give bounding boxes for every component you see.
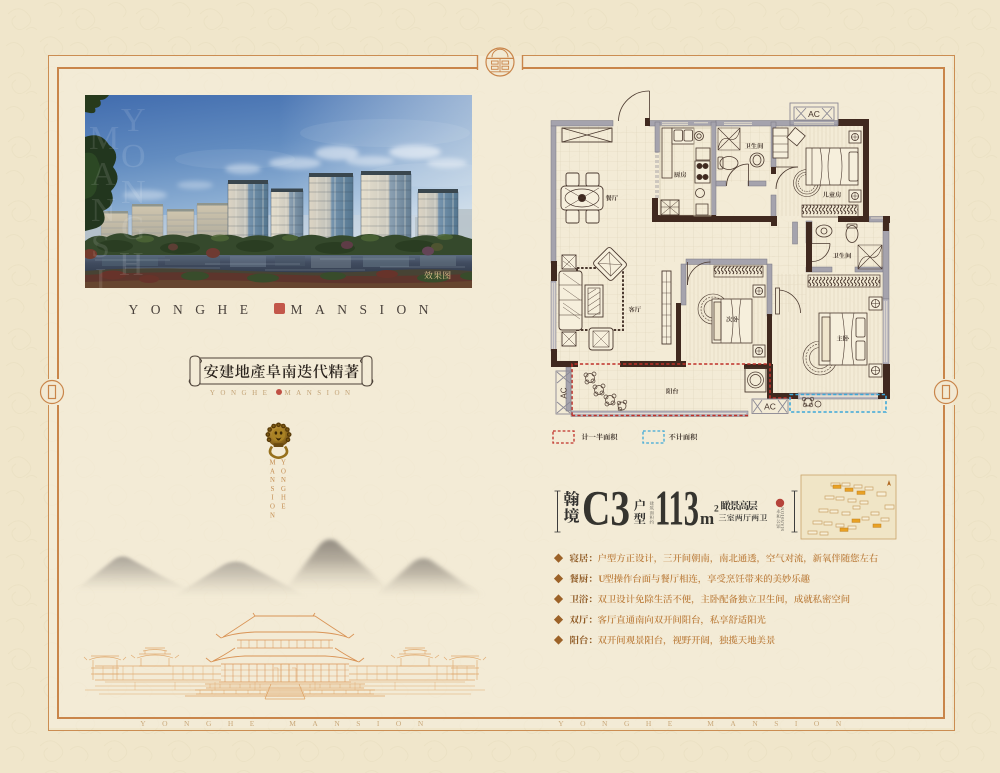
svg-text:H: H: [119, 246, 144, 283]
svg-text:A: A: [270, 468, 275, 475]
svg-text:C3: C3: [582, 480, 630, 536]
svg-text:G: G: [281, 486, 286, 493]
svg-text:I: I: [95, 262, 106, 288]
svg-text:AC: AC: [764, 402, 776, 412]
svg-text:N: N: [270, 477, 275, 484]
svg-text:2: 2: [714, 505, 719, 515]
svg-text:AC: AC: [560, 387, 569, 398]
svg-text:Y: Y: [121, 102, 146, 139]
svg-text:E: E: [281, 504, 285, 511]
svg-text:U: U: [599, 575, 606, 585]
svg-text:S: S: [271, 486, 275, 493]
svg-text:O: O: [270, 504, 275, 511]
svg-text:113: 113: [655, 480, 699, 536]
svg-text:N: N: [91, 192, 116, 229]
svg-text:O: O: [281, 468, 286, 475]
svg-text:m: m: [700, 509, 714, 528]
svg-text:Y: Y: [281, 460, 286, 467]
svg-text:MANSION: MANSION: [780, 506, 785, 531]
svg-text:N: N: [281, 477, 286, 484]
svg-text:M: M: [269, 460, 275, 467]
svg-text:N: N: [121, 174, 146, 211]
svg-text:S: S: [91, 228, 110, 265]
svg-text:H: H: [281, 495, 286, 502]
svg-text:YONGHE MANSION: YONGHE MANSION: [558, 719, 858, 728]
svg-text:A: A: [91, 156, 116, 193]
svg-text:G: G: [121, 210, 146, 247]
svg-text:I: I: [271, 495, 274, 502]
svg-text:O: O: [121, 138, 146, 175]
svg-text:YONGHE MANSION: YONGHE MANSION: [140, 719, 440, 728]
svg-text:M: M: [89, 120, 119, 157]
svg-text:AC: AC: [808, 109, 820, 119]
